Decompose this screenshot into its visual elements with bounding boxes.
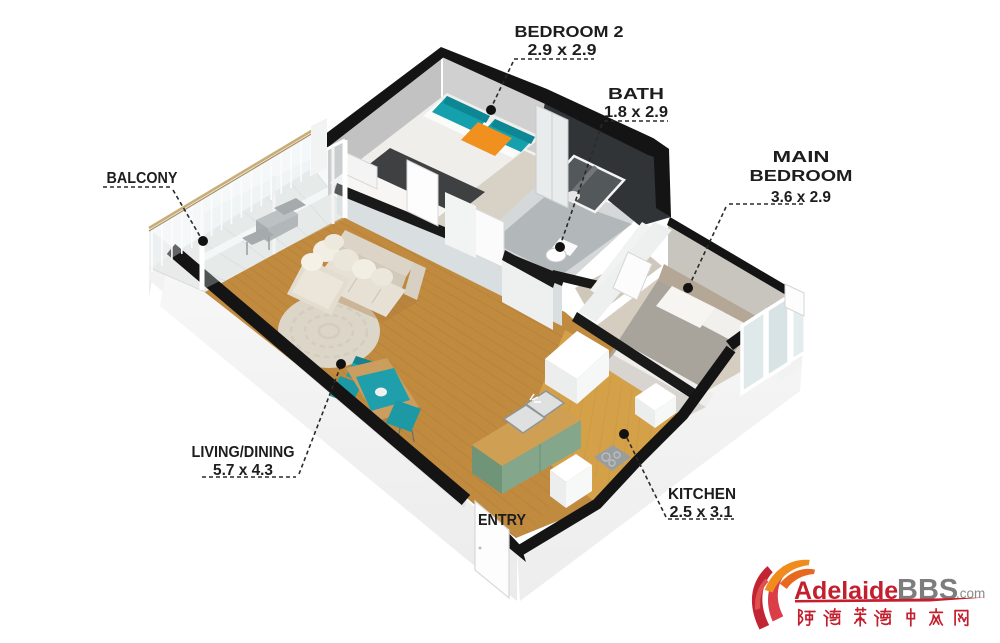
svg-text:5.7 x 4.3: 5.7 x 4.3 [213,462,273,479]
svg-text:BATH: BATH [608,86,664,103]
svg-text:2.9 x 2.9: 2.9 x 2.9 [528,42,597,59]
svg-text:2.5 x 3.1: 2.5 x 3.1 [670,504,733,521]
svg-text:BEDROOM 2: BEDROOM 2 [515,24,624,41]
svg-text:BEDROOM: BEDROOM [750,168,853,185]
svg-text:BALCONY: BALCONY [107,170,179,187]
svg-text:ENTRY: ENTRY [478,512,527,529]
svg-text:MAIN: MAIN [773,149,830,166]
svg-text:KITCHEN: KITCHEN [668,486,736,503]
svg-text:LIVING/DINING: LIVING/DINING [192,444,295,461]
svg-text:1.8 x 2.9: 1.8 x 2.9 [604,104,668,121]
